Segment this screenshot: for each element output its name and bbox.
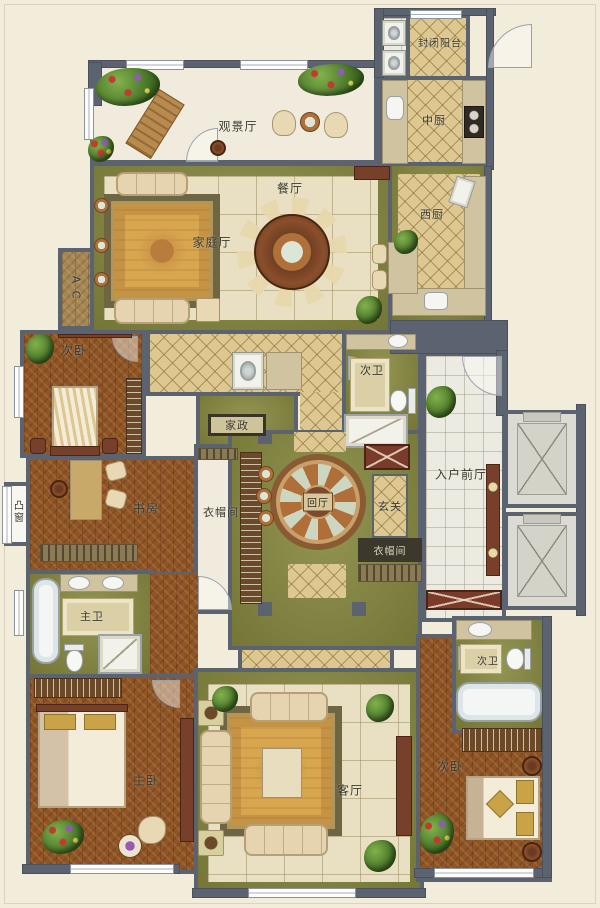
wall-nub (258, 602, 272, 616)
sofa (114, 298, 190, 324)
window (410, 10, 462, 19)
plant-stand (258, 466, 274, 482)
sideboard (354, 166, 390, 180)
kitchen-sink (386, 96, 404, 120)
cooktop (464, 106, 484, 138)
wardrobe (34, 678, 122, 698)
wardrobe (462, 728, 542, 752)
entry-mat (426, 590, 502, 610)
toilet (66, 650, 83, 672)
label-master-bath: 主卫 (80, 608, 104, 624)
sink (68, 576, 90, 590)
dryer (382, 50, 406, 76)
pillow (44, 714, 76, 730)
label-master-bedroom: 主卧 (133, 772, 159, 789)
bar-stool (372, 270, 387, 290)
closet-shelf (198, 448, 238, 460)
washing-machine (232, 352, 264, 390)
label-entry-hall: 玄关 (378, 498, 402, 514)
nightstand (30, 438, 46, 454)
floorplan-page: { "title": "residential-floor-plan", "co… (0, 0, 600, 908)
window (14, 366, 24, 418)
family-rug (104, 194, 220, 308)
kitchen-sink (424, 292, 448, 310)
label-family-hall: 家庭厅 (192, 234, 231, 251)
bed-headboard (36, 704, 128, 712)
bed-headboard (50, 446, 100, 456)
washing-machine (382, 20, 406, 46)
console-table (486, 464, 500, 576)
sofa (244, 824, 328, 856)
hall-tile-patch (288, 564, 346, 598)
window (240, 60, 308, 70)
label-ac-platform: A C (70, 276, 83, 301)
bathtub (456, 682, 542, 722)
label-bath-right: 次卫 (477, 653, 499, 668)
label-west-kitchen: 西厨 (420, 206, 444, 222)
sofa (200, 730, 232, 824)
laundry-cabinet (266, 352, 302, 390)
duct-shaft (364, 444, 410, 470)
elevator (504, 512, 580, 610)
curtain-rod (58, 334, 132, 338)
label-bedroom-right: 次卧 (437, 758, 463, 775)
window (14, 590, 24, 636)
toilet-tank (408, 388, 416, 414)
sofa (250, 692, 328, 722)
nightstand (522, 756, 542, 776)
label-living: 客厅 (337, 782, 363, 799)
elevator (504, 410, 580, 508)
label-bedroom-left: 次卧 (61, 342, 87, 359)
lamp-table (198, 830, 224, 856)
bar-stool (372, 244, 387, 264)
plant-stand (258, 510, 274, 526)
sink (102, 576, 124, 590)
label-enclosed-balcony: 封闭阳台 (418, 35, 462, 50)
shower-stall (98, 634, 142, 674)
toilet-tank (524, 648, 531, 670)
pillow (516, 812, 534, 836)
label-walkin-closet: 衣帽间 (203, 504, 239, 520)
pillow (84, 714, 116, 730)
label-bay-window: 凸窗 (10, 500, 25, 524)
toilet (506, 648, 524, 670)
label-dining: 餐厅 (277, 180, 303, 197)
label-housekeeping: 家政 (225, 417, 249, 433)
window (248, 888, 356, 898)
fireplace-stand (196, 298, 220, 322)
tv-console (396, 736, 412, 836)
label-closet-small: 衣帽间 (374, 543, 407, 558)
label-study: 书房 (133, 500, 159, 517)
wardrobe (126, 378, 142, 454)
label-chinese-kitchen: 中厨 (422, 112, 446, 128)
plant-stand (256, 488, 272, 504)
coffee-table (262, 748, 302, 798)
window (84, 88, 94, 140)
shoe-rack (358, 564, 422, 582)
tv-console (180, 718, 194, 842)
nightstand (102, 438, 118, 454)
plant-stand (94, 272, 109, 287)
rattan-chair (324, 112, 348, 138)
side-table (210, 140, 226, 156)
round-rug (118, 834, 142, 858)
desk (70, 460, 102, 520)
kitchen-counter (382, 80, 408, 164)
bathtub (32, 578, 60, 664)
bed (52, 386, 98, 448)
sofa (116, 172, 188, 196)
tea-table (300, 112, 320, 132)
plant-stand (94, 198, 109, 213)
hall-tile-patch (294, 432, 346, 452)
toilet (390, 390, 407, 412)
corridor-wood (150, 574, 198, 676)
door-arc (488, 24, 532, 68)
plant-stand (94, 238, 109, 253)
dining-centerpiece (272, 232, 312, 272)
label-bath-top: 次卫 (360, 362, 384, 378)
armchair (138, 816, 166, 844)
window (70, 864, 174, 874)
bookshelf (40, 544, 138, 562)
shower-stall (344, 414, 408, 448)
rattan-chair (272, 110, 296, 136)
nightstand (522, 842, 542, 862)
floor-plan: 观景厅 封闭阳台 中厨 餐厅 家庭厅 西厨 A C 次卧 次卫 家政 书房 凸窗… (0, 0, 600, 908)
label-viewing-hall: 观景厅 (218, 118, 257, 135)
wall-nub (352, 602, 366, 616)
sink (388, 334, 408, 348)
window (434, 868, 534, 878)
sink (468, 622, 492, 637)
pillow (516, 780, 534, 804)
desk-chair (50, 480, 68, 498)
label-central-hall: 回厅 (303, 493, 333, 512)
wall (542, 616, 552, 878)
label-foyer: 入户前厅 (435, 466, 487, 483)
wall (486, 8, 494, 170)
